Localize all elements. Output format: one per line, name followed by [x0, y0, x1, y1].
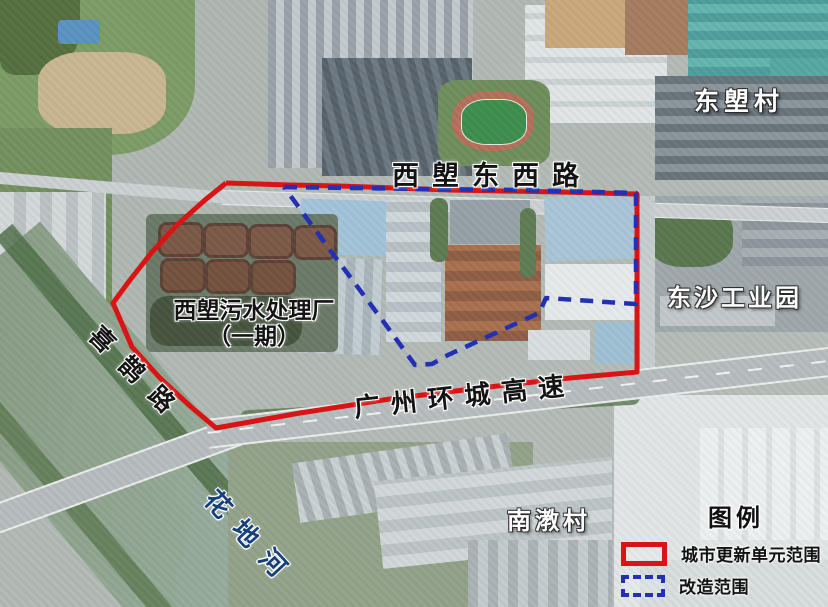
village-label-nanjiao: 南漖村	[507, 501, 591, 536]
legend-label-renovation: 改造范围	[679, 573, 749, 598]
legend-swatch-red-solid	[621, 542, 667, 566]
legend-swatch-blue-dashed	[621, 575, 665, 597]
village-label-donglang: 东塱村	[694, 82, 784, 118]
plant-label: 西塱污水处理厂 （一期）	[168, 297, 340, 349]
industrial-park-label: 东沙工业园	[667, 278, 802, 313]
satellite-map: 西塱东西路 西塱污水处理厂 （一期） 东塱村 东沙工业园 喜鹊路 广州环城高速 …	[0, 0, 828, 607]
road-label-xilang-dongxi: 西塱东西路	[392, 154, 592, 193]
legend-item-renewal-unit: 城市更新单元范围	[621, 541, 828, 566]
legend-label-renewal-unit: 城市更新单元范围	[681, 541, 821, 566]
plant-label-line1: 西塱污水处理厂	[168, 297, 340, 323]
legend-item-renovation: 改造范围	[621, 573, 828, 598]
plant-label-line2: （一期）	[168, 323, 340, 349]
legend: 图例 城市更新单元范围 改造范围	[613, 498, 828, 605]
legend-title: 图例	[708, 498, 828, 533]
